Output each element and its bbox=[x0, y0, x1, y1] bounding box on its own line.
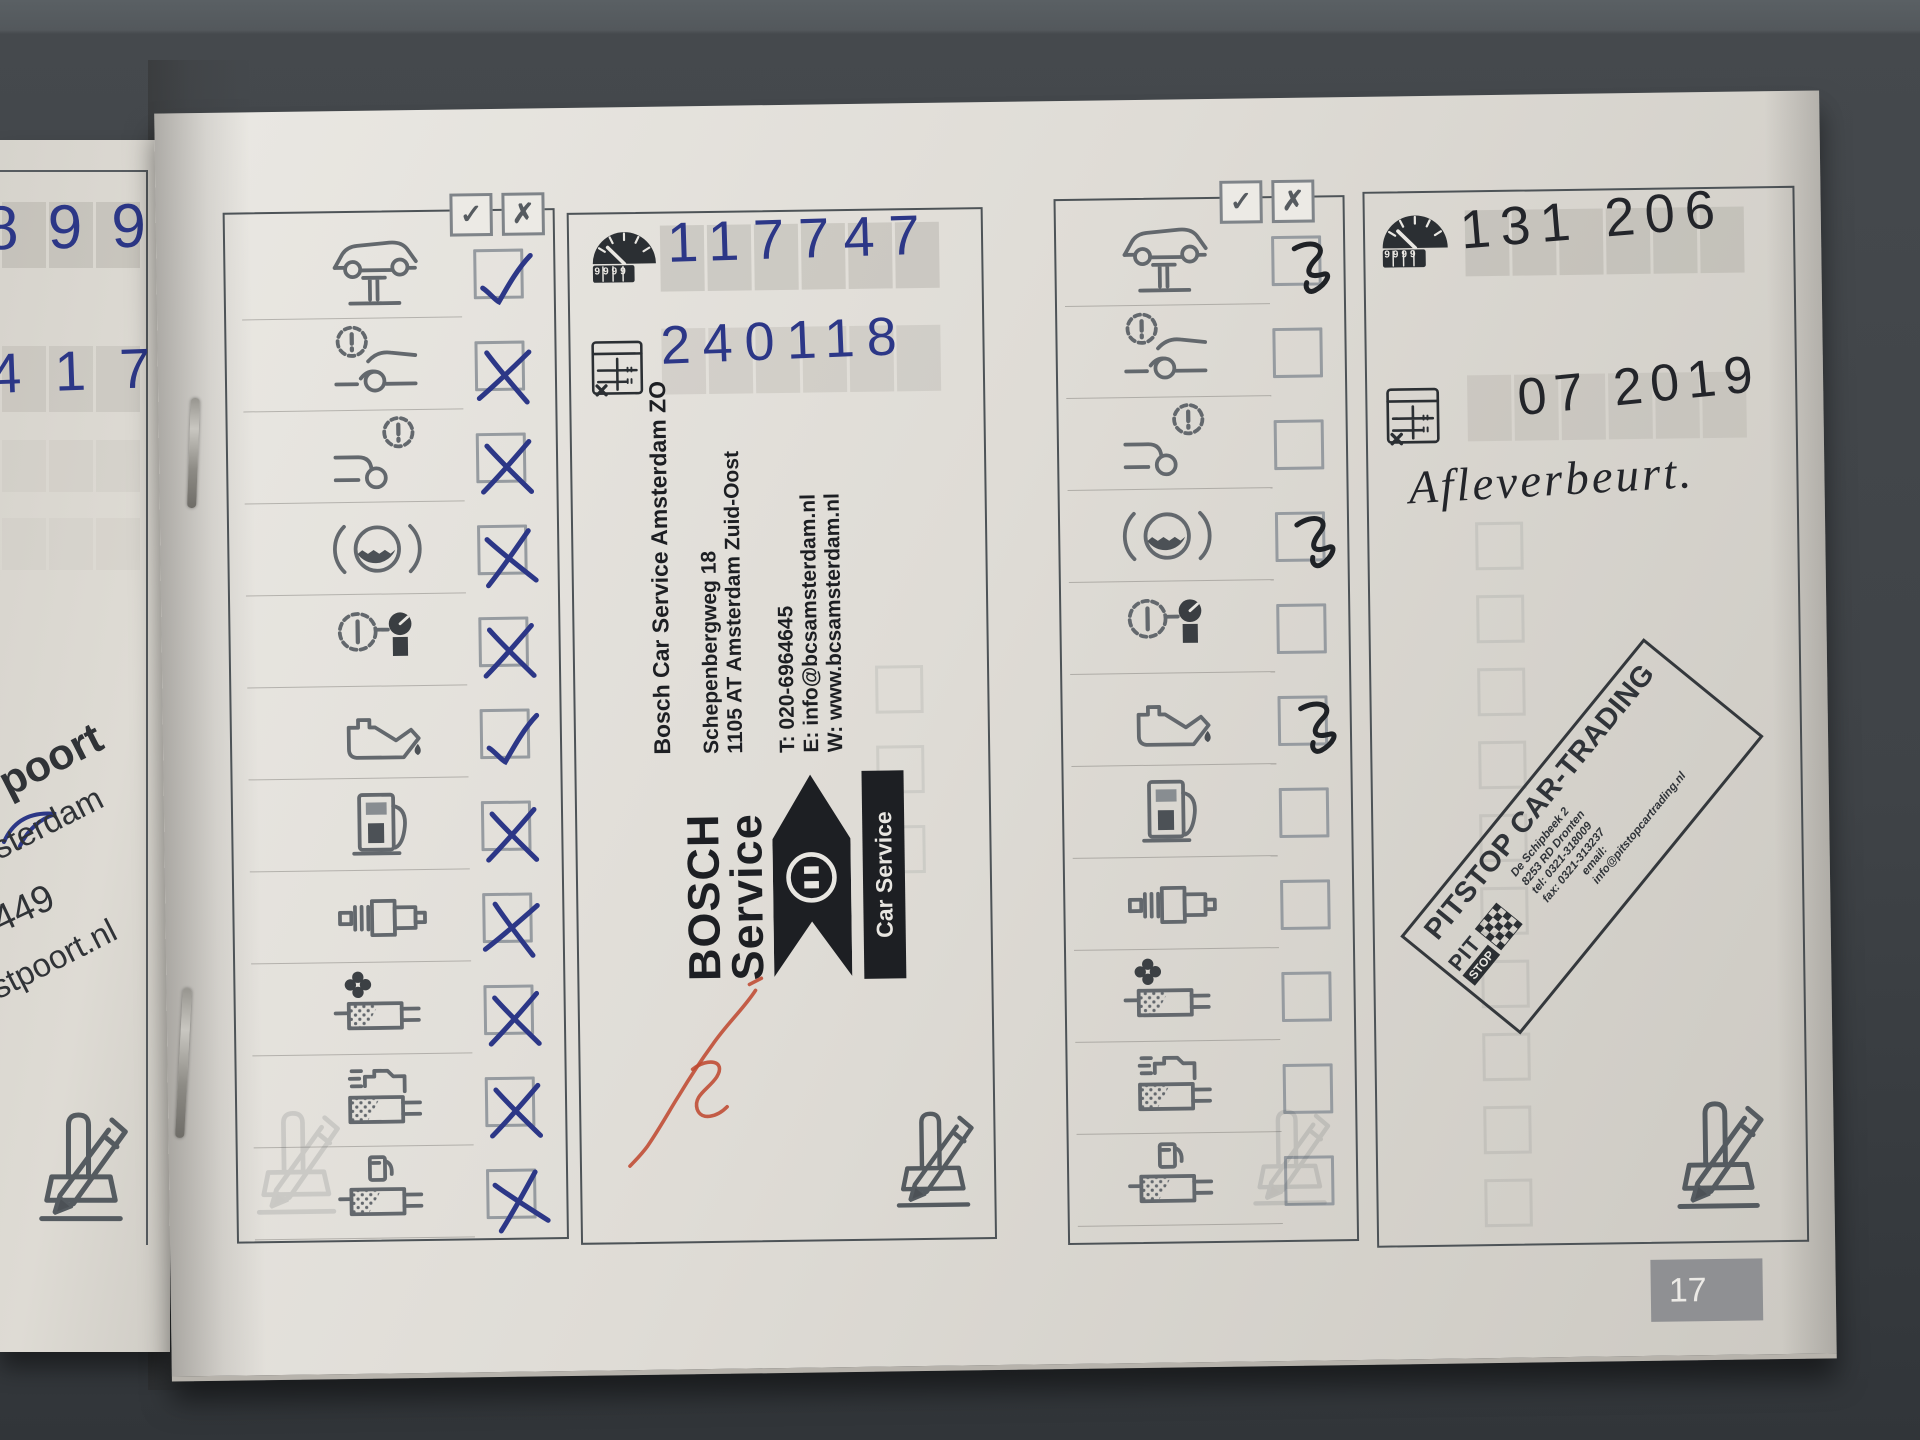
checkbox-rear-brakes bbox=[1274, 419, 1325, 470]
service-item-row bbox=[1065, 855, 1353, 951]
left-page-table-border-right bbox=[146, 170, 148, 1245]
engine-oil-can-icon bbox=[289, 688, 470, 776]
checkbox-front-brakes bbox=[1272, 327, 1323, 378]
service-item-row bbox=[1060, 487, 1348, 583]
photo-scene: 8 9 9 4 1 7 poort sterdam 449 stpoort.nl… bbox=[0, 0, 1920, 1440]
rear-brakes-warning-icon bbox=[1084, 399, 1247, 486]
tire-pressure-gauge-icon bbox=[288, 596, 469, 684]
checkbox-air-filter bbox=[483, 984, 534, 1035]
left-odometer-cells bbox=[2, 202, 140, 268]
bosch-car-service-bar: Car Service bbox=[862, 770, 907, 979]
ghost-checkbox bbox=[1478, 741, 1527, 790]
calendar-icon bbox=[1382, 371, 1449, 456]
bosch-logo-word1: BOSCH bbox=[680, 756, 726, 982]
fuel-filter-icon bbox=[1095, 1135, 1258, 1222]
service-item-row bbox=[230, 592, 559, 689]
vehicle-on-lift-icon bbox=[283, 228, 464, 316]
service-note-handwriting: Afleverbeurt. bbox=[1407, 445, 1695, 515]
service-item-row bbox=[1062, 671, 1350, 767]
service-item-row bbox=[1056, 211, 1344, 307]
front-brakes-warning-icon bbox=[1083, 307, 1246, 394]
ghost-checkbox bbox=[1483, 1106, 1532, 1155]
page-number: 17 bbox=[1669, 1271, 1707, 1311]
engine-oil-can-icon bbox=[1088, 675, 1251, 762]
fuel-pump-icon bbox=[291, 780, 472, 868]
bosch-stamp-web: W: www.bcsamsterdam.nl bbox=[819, 380, 848, 752]
front-brakes-warning-icon bbox=[284, 320, 465, 408]
left-stamp-fragment-3: 449 bbox=[0, 877, 62, 943]
odometer-icon-digits: 9999 bbox=[594, 266, 628, 277]
service-item-row bbox=[229, 500, 558, 597]
checkbox-brake-fluid bbox=[1275, 511, 1326, 562]
checkbox-fuel-filter bbox=[486, 1168, 537, 1219]
checkbox-vehicle-on-lift bbox=[1271, 235, 1322, 286]
ghost-checkbox bbox=[1477, 668, 1526, 717]
engine-interior-filter-icon bbox=[1093, 1043, 1256, 1130]
service-item-row bbox=[225, 224, 554, 321]
stamp-and-pen-icon bbox=[25, 1105, 137, 1247]
stamp-and-pen-icon bbox=[1657, 1093, 1779, 1235]
bosch-logo: BOSCH Service Car Service bbox=[650, 753, 931, 982]
ghost-checkbox bbox=[1475, 522, 1524, 571]
checkbox-tire-pressure bbox=[1276, 603, 1327, 654]
checkbox-engine-oil bbox=[1277, 695, 1328, 746]
checkbox-tire-pressure bbox=[478, 617, 529, 668]
service-book-page: ✓ ✗ bbox=[154, 90, 1837, 1381]
checkbox-fuel-system bbox=[1279, 787, 1330, 838]
checkbox-air-filter bbox=[1281, 971, 1332, 1022]
rear-brakes-warning-icon bbox=[285, 412, 466, 500]
odometer-icon: 9999 bbox=[588, 222, 661, 289]
checkbox-spark-plugs bbox=[1280, 879, 1331, 930]
page-number-badge: 17 bbox=[1650, 1258, 1763, 1322]
bosch-service-stamp: BOSCH Service Car Service Bosch Car Serv… bbox=[645, 378, 931, 982]
date-cells bbox=[1467, 371, 1747, 441]
spark-plug-icon bbox=[292, 872, 473, 960]
service-item-row bbox=[1066, 947, 1354, 1043]
odometer-cells bbox=[660, 222, 940, 292]
checkbox-spark-plugs bbox=[482, 892, 533, 943]
odometer-icon: 9999 bbox=[1378, 205, 1453, 274]
service-column-4: 9999 131 206 07 2019 Afleverbeurt. bbox=[1362, 186, 1809, 1248]
odometer-cells bbox=[1465, 207, 1745, 277]
bosch-stamp-address: Bosch Car Service Amsterdam ZO Schepenbe… bbox=[645, 379, 928, 757]
brake-fluid-icon bbox=[1086, 491, 1249, 578]
service-item-row bbox=[233, 776, 562, 873]
stamp-and-pen-watermark-icon bbox=[239, 1103, 353, 1240]
bosch-stamp-name: Bosch Car Service Amsterdam ZO bbox=[645, 383, 674, 755]
brake-fluid-icon bbox=[287, 504, 468, 592]
left-page-table-border-top bbox=[0, 170, 148, 172]
ghost-checkbox bbox=[1484, 1179, 1533, 1228]
left-ghost-cells-1 bbox=[2, 440, 140, 492]
fuel-pump-icon bbox=[1089, 767, 1252, 854]
odometer-icon-digits: 9999 bbox=[1384, 249, 1418, 260]
pitstop-car-trading-stamp: PITSTOP CAR-TRADING PIT STOP De Schi bbox=[1400, 638, 1763, 1034]
calendar-icon bbox=[587, 324, 652, 407]
stamp-and-pen-watermark-icon bbox=[1236, 1102, 1343, 1228]
bosch-logo-word2: Service bbox=[723, 755, 769, 981]
bosch-stamp-city: 1105 AT Amsterdam Zuid-Oost bbox=[719, 381, 748, 753]
ghost-checkbox bbox=[1482, 1033, 1531, 1082]
stamp-and-pen-icon bbox=[873, 1104, 993, 1231]
checkbox-rear-brakes bbox=[476, 433, 527, 484]
checkbox-fuel-system bbox=[481, 800, 532, 851]
checkbox-brake-fluid bbox=[477, 525, 528, 576]
air-filter-icon bbox=[293, 964, 474, 1052]
left-page: 8 9 9 4 1 7 poort sterdam 449 stpoort.nl bbox=[0, 140, 170, 1352]
service-item-row bbox=[1058, 395, 1346, 491]
service-item-row bbox=[1057, 303, 1345, 399]
service-item-row bbox=[235, 960, 564, 1057]
service-item-row bbox=[227, 408, 556, 505]
left-ghost-cells-2 bbox=[2, 518, 140, 570]
service-column-2: 9999 117747 240118 BOSCH Se bbox=[567, 207, 997, 1245]
checkbox-vehicle-on-lift bbox=[473, 249, 524, 300]
ghost-checkbox bbox=[1476, 595, 1525, 644]
bosch-arrow-emblem-icon bbox=[772, 771, 853, 980]
spark-plug-icon bbox=[1091, 859, 1254, 946]
red-signature bbox=[603, 982, 781, 1169]
service-column-1: ✓ ✗ bbox=[223, 208, 569, 1244]
service-item-row bbox=[226, 316, 555, 413]
checkbox-interior-filter bbox=[485, 1076, 536, 1127]
vehicle-on-lift-icon bbox=[1082, 215, 1245, 302]
tire-pressure-gauge-icon bbox=[1087, 583, 1250, 670]
service-item-row bbox=[234, 868, 563, 965]
service-item-row bbox=[1063, 763, 1351, 859]
air-filter-icon bbox=[1092, 951, 1255, 1038]
left-date-cells bbox=[2, 346, 140, 412]
service-column-3: ✓ ✗ bbox=[1054, 195, 1360, 1245]
checkbox-engine-oil bbox=[480, 709, 531, 760]
service-item-row bbox=[1061, 579, 1349, 675]
service-item-row bbox=[231, 684, 560, 781]
checkbox-front-brakes bbox=[474, 341, 525, 392]
